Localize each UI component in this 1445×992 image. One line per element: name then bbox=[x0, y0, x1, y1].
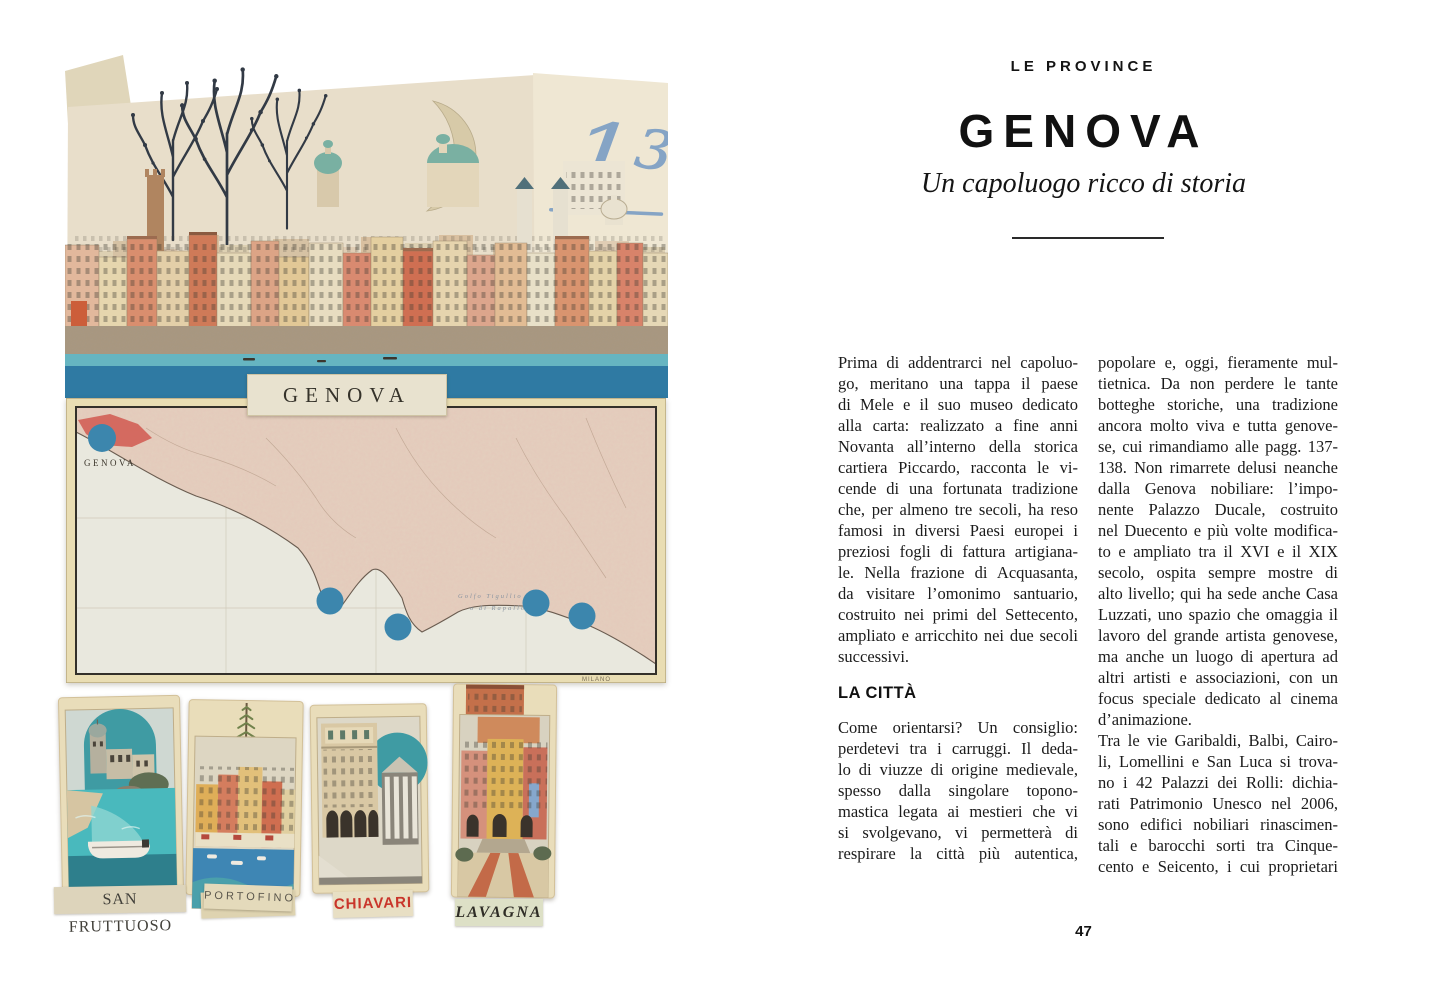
map-city-label: GENOVA bbox=[84, 458, 136, 468]
section-heading-la-citta: LA CITTÀ bbox=[838, 683, 1078, 704]
page-number: 47 bbox=[722, 923, 1445, 940]
page-title: GENOVA bbox=[722, 104, 1445, 158]
book-spread: 1³ 51 bbox=[0, 0, 1445, 992]
postcard-chiavari bbox=[310, 703, 430, 894]
paragraph-botteghe: popolare e, oggi, fieramente mul-tietnic… bbox=[1098, 352, 1338, 730]
genova-plaque-label: GENOVA bbox=[247, 374, 447, 416]
skyline-illustration: 1³ 51 bbox=[65, 13, 668, 398]
postcard-label-lavagna: LAVAGNA bbox=[455, 899, 543, 926]
postcard-label-san-fruttuoso: SAN FRUTTUOSO bbox=[54, 885, 186, 914]
paragraph-rolli: Tra le vie Garibaldi, Balbi, Cairo-li, L… bbox=[1098, 730, 1338, 877]
title-divider-rule bbox=[1012, 237, 1164, 239]
chiavari-illustration bbox=[311, 704, 429, 893]
map-imprint: MILANO bbox=[582, 677, 611, 683]
skyline-front-row bbox=[65, 232, 668, 329]
lavagna-illustration bbox=[452, 684, 556, 915]
right-page-text: LE PROVINCE GENOVA Un capoluogo ricco di… bbox=[722, 0, 1445, 992]
sea-light-band bbox=[65, 354, 668, 368]
left-page-artwork: 1³ 51 bbox=[0, 0, 722, 992]
postcard-label-portofino: PORTOFINO bbox=[204, 883, 293, 911]
genova-skyline-collage: 1³ 51 bbox=[65, 13, 668, 398]
text-column-2: popolare e, oggi, fieramente mul-tietnic… bbox=[1098, 352, 1338, 877]
section-kicker: LE PROVINCE bbox=[722, 58, 1445, 75]
liguria-vintage-map: GENOVA Golfo Tigullio o di Rapallo MILAN… bbox=[66, 398, 666, 683]
postcard-san-fruttuoso bbox=[58, 695, 184, 898]
page-subtitle: Un capoluogo ricco di storia bbox=[722, 168, 1445, 200]
paragraph-mele: Prima di addentrarci nel capoluo-go, mer… bbox=[838, 352, 1078, 667]
map-sea-label-2: o di Rapallo bbox=[470, 605, 526, 612]
postcard-portofino bbox=[185, 699, 303, 897]
postcard-lavagna bbox=[451, 683, 557, 898]
text-column-1: Prima di addentrarci nel capoluo-go, mer… bbox=[838, 352, 1078, 877]
paragraph-carruggi: Come orientarsi? Un consiglio:perdetevi … bbox=[838, 717, 1078, 864]
postcard-label-chiavari: CHIAVARI bbox=[333, 890, 414, 918]
map-sea-label-1: Golfo Tigullio bbox=[458, 593, 523, 600]
body-text-columns: Prima di addentrarci nel capoluo-go, mer… bbox=[838, 352, 1338, 877]
map-illustration: GENOVA Golfo Tigullio o di Rapallo MILAN… bbox=[66, 398, 666, 683]
san-fruttuoso-illustration bbox=[59, 696, 183, 896]
